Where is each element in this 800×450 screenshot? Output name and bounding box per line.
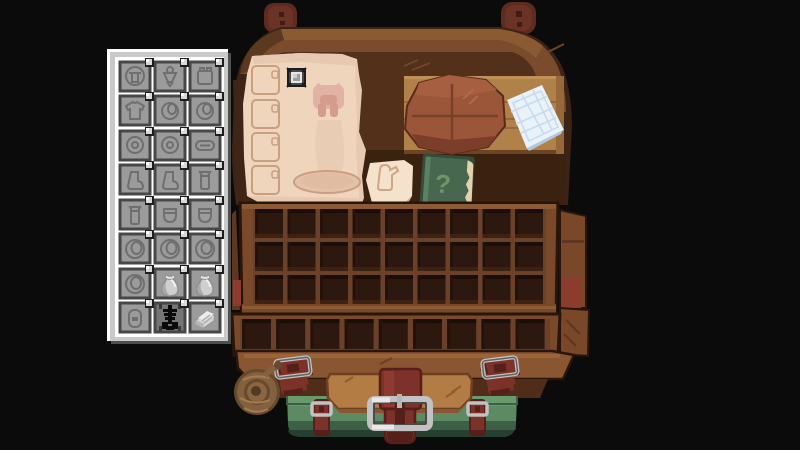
svg-text:?: ?: [434, 168, 452, 199]
